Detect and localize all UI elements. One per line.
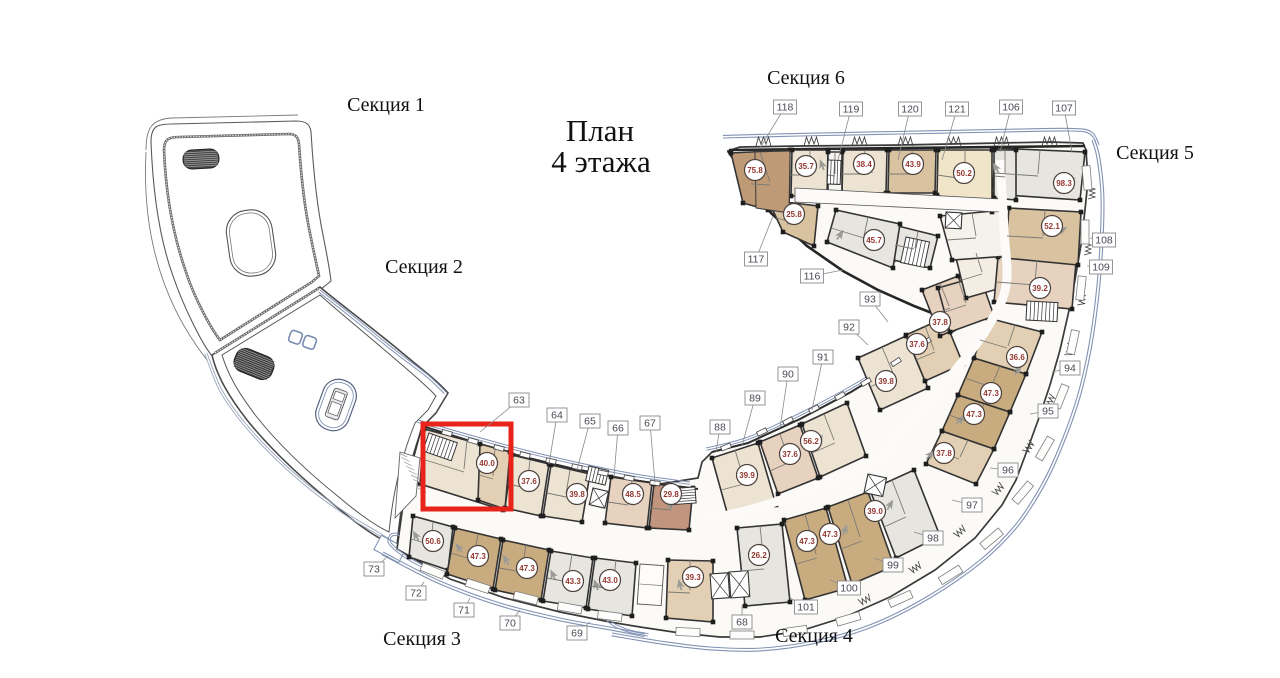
svg-text:118: 118 <box>777 102 794 114</box>
svg-text:97: 97 <box>966 500 978 512</box>
svg-text:119: 119 <box>843 104 860 116</box>
svg-text:116: 116 <box>804 271 821 283</box>
svg-text:47.3: 47.3 <box>983 389 999 398</box>
svg-text:43.9: 43.9 <box>905 160 921 169</box>
svg-text:108: 108 <box>1095 235 1113 247</box>
svg-text:50.6: 50.6 <box>425 537 441 546</box>
svg-text:117: 117 <box>748 254 765 266</box>
svg-text:45.7: 45.7 <box>866 236 882 245</box>
svg-text:73: 73 <box>368 564 380 576</box>
svg-text:106: 106 <box>1002 102 1020 114</box>
svg-text:39.8: 39.8 <box>569 490 585 499</box>
svg-text:47.3: 47.3 <box>799 537 815 546</box>
svg-text:37.6: 37.6 <box>782 450 798 459</box>
svg-text:100: 100 <box>840 583 858 595</box>
svg-text:Секция 1: Секция 1 <box>347 94 425 116</box>
svg-text:4 этажа: 4 этажа <box>551 144 651 179</box>
svg-text:56.2: 56.2 <box>803 437 819 446</box>
svg-text:26.2: 26.2 <box>751 551 767 560</box>
svg-text:36.6: 36.6 <box>1009 353 1025 362</box>
svg-text:94: 94 <box>1064 363 1076 375</box>
svg-text:29.8: 29.8 <box>663 490 679 499</box>
svg-text:98.3: 98.3 <box>1056 179 1072 188</box>
svg-text:43.3: 43.3 <box>565 577 581 586</box>
svg-text:План: План <box>566 113 634 148</box>
svg-text:39.9: 39.9 <box>739 471 755 480</box>
svg-text:70: 70 <box>504 618 516 630</box>
svg-text:50.2: 50.2 <box>956 169 972 178</box>
svg-text:52.1: 52.1 <box>1044 222 1060 231</box>
svg-text:121: 121 <box>948 104 966 116</box>
svg-text:39.2: 39.2 <box>1032 284 1048 293</box>
svg-text:109: 109 <box>1092 262 1110 274</box>
svg-text:Секция 3: Секция 3 <box>383 628 461 650</box>
svg-text:99: 99 <box>887 560 899 572</box>
svg-text:35.7: 35.7 <box>798 162 814 171</box>
svg-text:68: 68 <box>736 617 748 629</box>
svg-text:63: 63 <box>513 395 525 407</box>
svg-text:39.3: 39.3 <box>685 573 701 582</box>
svg-text:64: 64 <box>551 410 563 422</box>
svg-text:69: 69 <box>571 628 583 640</box>
svg-text:39.0: 39.0 <box>867 507 883 516</box>
svg-text:43.0: 43.0 <box>602 576 618 585</box>
svg-text:65: 65 <box>584 416 596 428</box>
svg-text:37.6: 37.6 <box>521 477 537 486</box>
svg-text:95: 95 <box>1042 406 1054 418</box>
svg-text:101: 101 <box>797 602 815 614</box>
svg-text:47.3: 47.3 <box>470 552 486 561</box>
svg-text:98: 98 <box>927 533 939 545</box>
svg-text:96: 96 <box>1002 465 1014 477</box>
svg-text:107: 107 <box>1055 103 1073 115</box>
svg-text:37.8: 37.8 <box>932 318 948 327</box>
svg-text:71: 71 <box>458 605 470 617</box>
svg-text:38.4: 38.4 <box>856 160 872 169</box>
svg-text:47.3: 47.3 <box>966 410 982 419</box>
svg-text:Секция 2: Секция 2 <box>385 256 463 278</box>
svg-text:Секция 5: Секция 5 <box>1116 142 1194 164</box>
svg-text:93: 93 <box>864 294 876 306</box>
svg-text:67: 67 <box>644 418 656 430</box>
svg-text:39.8: 39.8 <box>878 377 894 386</box>
svg-text:89: 89 <box>749 393 761 405</box>
svg-text:37.8: 37.8 <box>936 449 952 458</box>
svg-text:72: 72 <box>410 588 422 600</box>
svg-text:Секция 6: Секция 6 <box>767 67 845 89</box>
svg-text:Секция 4: Секция 4 <box>775 625 853 647</box>
svg-text:90: 90 <box>782 369 794 381</box>
svg-text:75.8: 75.8 <box>747 166 763 175</box>
svg-text:37.6: 37.6 <box>909 340 925 349</box>
svg-text:91: 91 <box>817 352 829 364</box>
svg-text:66: 66 <box>612 423 624 435</box>
svg-text:47.3: 47.3 <box>822 530 838 539</box>
svg-text:88: 88 <box>714 422 726 434</box>
svg-text:40.0: 40.0 <box>479 459 495 468</box>
svg-text:25.8: 25.8 <box>786 210 802 219</box>
svg-text:48.5: 48.5 <box>625 490 641 499</box>
svg-text:92: 92 <box>843 322 855 334</box>
svg-text:47.3: 47.3 <box>519 564 535 573</box>
svg-text:120: 120 <box>901 104 919 116</box>
